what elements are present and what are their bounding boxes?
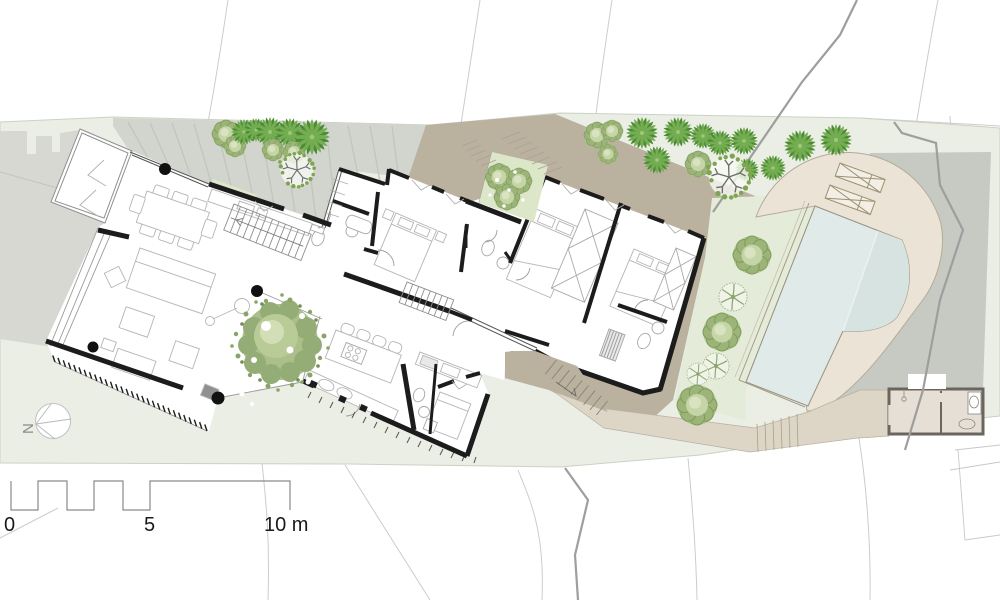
svg-text:10 m: 10 m [264, 514, 308, 536]
svg-text:0: 0 [4, 514, 15, 536]
svg-text:5: 5 [144, 514, 155, 536]
svg-text:N: N [20, 423, 37, 434]
